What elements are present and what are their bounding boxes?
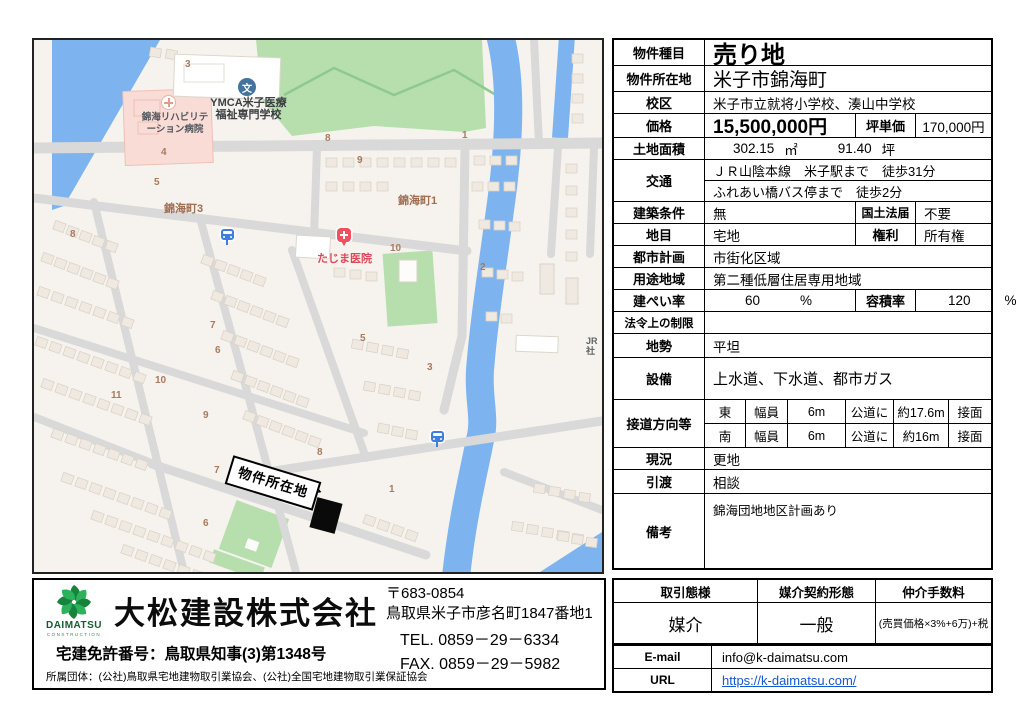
house xyxy=(53,220,66,232)
phone-number: TEL. 0859－29－6334 xyxy=(400,626,559,650)
house xyxy=(257,380,270,392)
house xyxy=(147,530,160,542)
house xyxy=(49,341,62,353)
house xyxy=(566,230,577,239)
location-value: 米子市錦海町 xyxy=(704,66,991,91)
house xyxy=(501,314,512,323)
city-plan-label: 都市計画 xyxy=(614,246,704,267)
logo-subtext: CONSTRUCTION xyxy=(42,632,106,637)
unit-price-value: 170,000円 xyxy=(915,114,991,137)
price-label: 価格 xyxy=(614,114,704,137)
school-icon-glyph: 文 xyxy=(242,80,252,95)
house xyxy=(125,408,138,420)
house xyxy=(428,158,439,167)
house xyxy=(83,393,96,405)
block-number: 11 xyxy=(111,390,122,401)
house xyxy=(37,286,50,298)
house xyxy=(121,544,134,556)
email-value: info@k-daimatsu.com xyxy=(711,646,991,668)
block-number: 8 xyxy=(70,229,76,240)
house xyxy=(250,305,263,317)
handover-value: 相談 xyxy=(704,470,991,493)
house xyxy=(135,549,148,561)
block-number: 3 xyxy=(427,362,433,373)
house xyxy=(377,158,388,167)
house xyxy=(506,156,517,165)
house xyxy=(163,559,176,571)
rights-value: 所有権 xyxy=(915,224,991,245)
utilities-value: 上水道、下水道、都市ガス xyxy=(704,358,991,399)
access-label: 交通 xyxy=(614,160,704,201)
house xyxy=(286,355,299,367)
utilities-label: 設備 xyxy=(614,358,704,399)
land-act-label: 国土法届 xyxy=(855,202,915,223)
school-district-value: 米子市立就将小学校、湊山中学校 xyxy=(704,92,991,113)
house xyxy=(79,301,92,313)
house xyxy=(363,514,376,526)
house xyxy=(237,300,250,312)
zoning-label: 用途地域 xyxy=(614,268,704,289)
house xyxy=(381,345,393,356)
house xyxy=(377,519,390,531)
house xyxy=(69,388,82,400)
access-values: ＪＲ山陰本線 米子駅まで 徒歩31分 ふれあい橋バス停まで 徒歩2分 xyxy=(704,160,991,201)
bus-stop-icon-1 xyxy=(221,229,234,240)
block-number: 4 xyxy=(161,147,167,158)
house xyxy=(111,403,124,415)
house xyxy=(585,537,597,547)
house xyxy=(105,361,118,373)
unit-price-label: 坪単価 xyxy=(855,114,915,137)
house xyxy=(479,220,490,229)
address-line: 鳥取県米子市彦名町1847番地1 xyxy=(386,604,593,624)
jr-partial-label: JR社 xyxy=(586,336,598,356)
access-line-2: ふれあい橋バス停まで 徒歩2分 xyxy=(705,181,991,201)
house xyxy=(273,350,286,362)
house xyxy=(557,531,569,541)
building-condition-label: 建築条件 xyxy=(614,202,704,223)
house xyxy=(105,515,118,527)
far-label: 容積率 xyxy=(855,290,915,311)
house xyxy=(343,182,354,191)
bcr-label: 建ぺい率 xyxy=(614,290,704,311)
house xyxy=(405,429,417,440)
block-number: 2 xyxy=(480,262,486,273)
company-block: DAIMATSU CONSTRUCTION 大松建設株式会社 宅建免許番号：鳥取… xyxy=(32,578,606,690)
school-icon: 文 xyxy=(238,78,256,96)
house xyxy=(566,252,577,261)
house xyxy=(283,390,296,402)
house xyxy=(270,385,283,397)
house xyxy=(91,356,104,368)
current-status-label: 現況 xyxy=(614,448,704,469)
house xyxy=(119,520,132,532)
house xyxy=(308,435,321,447)
type-value: 売り地 xyxy=(704,40,991,65)
house xyxy=(80,267,93,279)
school-district-label: 校区 xyxy=(614,92,704,113)
associations: 所属団体：(公社)鳥取県宅地建物取引業協会、(公社)全国宅地建物取引業保証協会 xyxy=(46,669,428,684)
building-condition-value: 無 xyxy=(704,202,855,223)
block-number: 1 xyxy=(462,130,468,141)
house xyxy=(227,264,240,276)
house xyxy=(488,182,499,191)
city-plan-value: 市街化区域 xyxy=(704,246,991,267)
house xyxy=(77,351,90,363)
house xyxy=(445,158,456,167)
remarks-label: 備考 xyxy=(614,494,704,568)
house xyxy=(296,395,309,407)
house xyxy=(89,482,102,494)
house xyxy=(103,487,116,499)
house xyxy=(253,274,266,286)
house xyxy=(276,315,289,327)
house xyxy=(326,182,337,191)
house xyxy=(509,222,520,231)
block-number: 5 xyxy=(360,333,366,344)
house xyxy=(572,74,583,83)
house xyxy=(93,272,106,284)
house xyxy=(572,94,583,103)
house xyxy=(67,262,80,274)
property-details-table: 物件種目 売り地 物件所在地 米子市錦海町 校区 米子市立就将小学校、湊山中学校… xyxy=(612,38,993,570)
district-label-3: 錦海町3 xyxy=(164,200,203,216)
road-access-label: 接道方向等 xyxy=(614,400,704,447)
land-act-value: 不要 xyxy=(915,202,991,223)
block-number: 7 xyxy=(214,465,220,476)
license-number: 宅建免許番号：鳥取県知事(3)第1348号 xyxy=(56,642,326,664)
house xyxy=(511,521,523,531)
house xyxy=(139,413,152,425)
house xyxy=(572,54,583,63)
block-number: 10 xyxy=(155,375,166,386)
house xyxy=(486,312,497,321)
house xyxy=(35,336,48,348)
house xyxy=(117,492,130,504)
house xyxy=(393,387,405,398)
rehab-hospital-label: 錦海リハビリテーション病院 xyxy=(130,112,220,136)
fax-number: FAX. 0859－29－5982 xyxy=(400,650,560,674)
txn-header-type: 取引態様 xyxy=(614,580,757,602)
house xyxy=(97,398,110,410)
house xyxy=(394,158,405,167)
house xyxy=(578,492,590,502)
road-access-table: 東 幅員 6m 公道に 約17.6m 接面 南 幅員 6m 公道に 約16m 接… xyxy=(704,400,991,447)
house xyxy=(566,164,577,173)
rights-label: 権利 xyxy=(855,224,915,245)
house xyxy=(512,272,523,281)
handover-label: 引渡 xyxy=(614,470,704,493)
house xyxy=(541,527,553,537)
remarks-value: 錦海団地地区計画あり xyxy=(704,494,991,568)
legal-restrictions-value xyxy=(704,312,991,333)
house xyxy=(191,569,204,572)
block-number: 8 xyxy=(317,447,323,458)
house xyxy=(494,221,505,230)
house xyxy=(533,483,545,493)
txn-header-fee: 仲介手数料 xyxy=(875,580,991,602)
road-access-row: 南 幅員 6m 公道に 約16m 接面 xyxy=(705,424,991,447)
bcr-value: 60% xyxy=(704,290,855,311)
block-number: 1 xyxy=(389,484,395,495)
clinic-label: たじま医院 xyxy=(317,250,372,266)
house xyxy=(526,524,538,534)
hospital-icon xyxy=(162,96,175,109)
land-category-value: 宅地 xyxy=(704,224,855,245)
house xyxy=(75,477,88,489)
terrain-value: 平坦 xyxy=(704,334,991,357)
txn-value-type: 媒介 xyxy=(614,603,757,643)
type-label: 物件種目 xyxy=(614,40,704,65)
house xyxy=(133,525,146,537)
house xyxy=(149,554,162,566)
location-map: 文 YMCA米子医療福祉専門学校 錦海リハビリテーション病院 たじま医院 錦海町… xyxy=(32,38,604,574)
house xyxy=(391,524,404,536)
house xyxy=(366,342,378,353)
zoning-value: 第二種低層住居専用地域 xyxy=(704,268,991,289)
logo-text: DAIMATSU xyxy=(42,620,106,631)
location-label: 物件所在地 xyxy=(614,66,704,91)
block-number: 10 xyxy=(390,243,401,254)
block-number: 5 xyxy=(154,177,160,188)
house xyxy=(343,158,354,167)
block-number: 3 xyxy=(185,59,191,70)
house xyxy=(51,291,64,303)
company-name: 大松建設株式会社 xyxy=(114,588,378,633)
block-number: 7 xyxy=(210,320,216,331)
house xyxy=(295,430,308,442)
house xyxy=(55,383,68,395)
house xyxy=(350,270,361,279)
txn-value-fee: (売買価格×3%+6万)+税 xyxy=(875,603,991,643)
house xyxy=(54,257,67,269)
txn-header-contract: 媒介契約形態 xyxy=(757,580,875,602)
house xyxy=(189,545,202,557)
house xyxy=(377,182,388,191)
contact-table: E-mail info@k-daimatsu.com URL https://k… xyxy=(612,644,993,693)
postal-code: 〒683-0854 xyxy=(386,584,593,604)
house xyxy=(149,47,161,58)
house xyxy=(411,158,422,167)
house xyxy=(566,208,577,217)
house xyxy=(366,272,377,281)
area-value: 302.15㎡ 91.40坪 xyxy=(704,138,991,159)
transaction-table: 取引態様 媒介契約形態 仲介手数料 媒介 一般 (売買価格×3%+6万)+税 xyxy=(612,578,993,645)
price-value: 15,500,000円 xyxy=(704,114,855,137)
road-access-row: 東 幅員 6m 公道に 約17.6m 接面 xyxy=(705,400,991,424)
house xyxy=(396,348,408,359)
daimatsu-logo-icon xyxy=(52,583,96,621)
txn-value-contract: 一般 xyxy=(757,603,875,643)
block-number: 6 xyxy=(215,345,221,356)
house xyxy=(326,158,337,167)
house xyxy=(247,340,260,352)
url-label: URL xyxy=(614,669,711,691)
house xyxy=(408,390,420,401)
house xyxy=(474,156,485,165)
house xyxy=(61,472,74,484)
house xyxy=(263,310,276,322)
house xyxy=(378,384,390,395)
house xyxy=(571,534,583,544)
block-number: 9 xyxy=(203,410,209,421)
house xyxy=(497,270,508,279)
house xyxy=(79,230,92,242)
access-line-1: ＪＲ山陰本線 米子駅まで 徒歩31分 xyxy=(705,160,991,181)
house xyxy=(91,510,104,522)
house xyxy=(260,345,273,357)
website-link[interactable]: https://k-daimatsu.com/ xyxy=(722,673,856,688)
house xyxy=(106,277,119,289)
email-label: E-mail xyxy=(614,646,711,668)
house xyxy=(131,497,144,509)
house xyxy=(405,529,418,541)
terrain-label: 地勢 xyxy=(614,334,704,357)
house xyxy=(566,186,577,195)
house xyxy=(563,489,575,499)
house xyxy=(119,366,132,378)
district-label-1: 錦海町1 xyxy=(398,192,437,208)
house xyxy=(472,182,483,191)
house xyxy=(63,346,76,358)
current-status-value: 更地 xyxy=(704,448,991,469)
house xyxy=(41,252,54,264)
flyer-page: 文 YMCA米子医療福祉専門学校 錦海リハビリテーション病院 たじま医院 錦海町… xyxy=(0,0,1024,724)
house xyxy=(145,502,158,514)
house xyxy=(490,156,501,165)
area-label: 土地面積 xyxy=(614,138,704,159)
house xyxy=(282,425,295,437)
house xyxy=(548,486,560,496)
bus-stop-icon-2 xyxy=(431,431,444,442)
house xyxy=(504,182,515,191)
house xyxy=(240,269,253,281)
land-category-label: 地目 xyxy=(614,224,704,245)
house xyxy=(572,114,583,123)
legal-restrictions-label: 法令上の制限 xyxy=(614,312,704,333)
house xyxy=(334,268,345,277)
house xyxy=(65,296,78,308)
house xyxy=(93,306,106,318)
block-number: 8 xyxy=(325,133,331,144)
house xyxy=(41,378,54,390)
house xyxy=(391,426,403,437)
block-number: 9 xyxy=(357,155,363,166)
company-address: 〒683-0854 鳥取県米子市彦名町1847番地1 xyxy=(386,584,593,624)
house xyxy=(363,381,375,392)
house xyxy=(360,182,371,191)
block-number: 6 xyxy=(203,518,209,529)
far-value: 120% xyxy=(915,290,991,311)
clinic-pin-icon xyxy=(337,228,351,242)
house xyxy=(377,423,389,434)
house xyxy=(269,420,282,432)
